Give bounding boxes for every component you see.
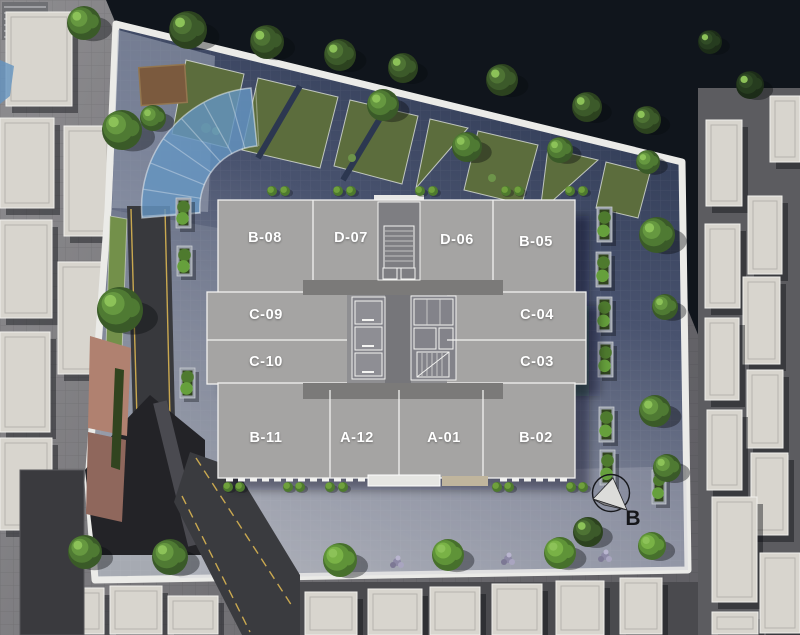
unit-c-04[interactable]: C-04 <box>520 307 554 323</box>
compass-label: B <box>625 507 640 531</box>
unit-c-09[interactable]: C-09 <box>249 307 283 323</box>
unit-a-12[interactable]: A-12 <box>340 430 374 446</box>
site-plan: B-08 D-07 D-06 B-05 C-09 C-04 C-10 C-03 … <box>0 0 800 635</box>
unit-b-08[interactable]: B-08 <box>248 230 282 246</box>
unit-a-01[interactable]: A-01 <box>427 430 461 446</box>
unit-b-11[interactable]: B-11 <box>249 430 282 446</box>
unit-d-06[interactable]: D-06 <box>440 232 474 248</box>
unit-labels: B-08 D-07 D-06 B-05 C-09 C-04 C-10 C-03 … <box>0 0 800 635</box>
unit-c-10[interactable]: C-10 <box>249 354 283 370</box>
unit-b-05[interactable]: B-05 <box>519 234 553 250</box>
unit-c-03[interactable]: C-03 <box>520 354 554 370</box>
unit-b-02[interactable]: B-02 <box>519 430 553 446</box>
unit-d-07[interactable]: D-07 <box>334 230 368 246</box>
